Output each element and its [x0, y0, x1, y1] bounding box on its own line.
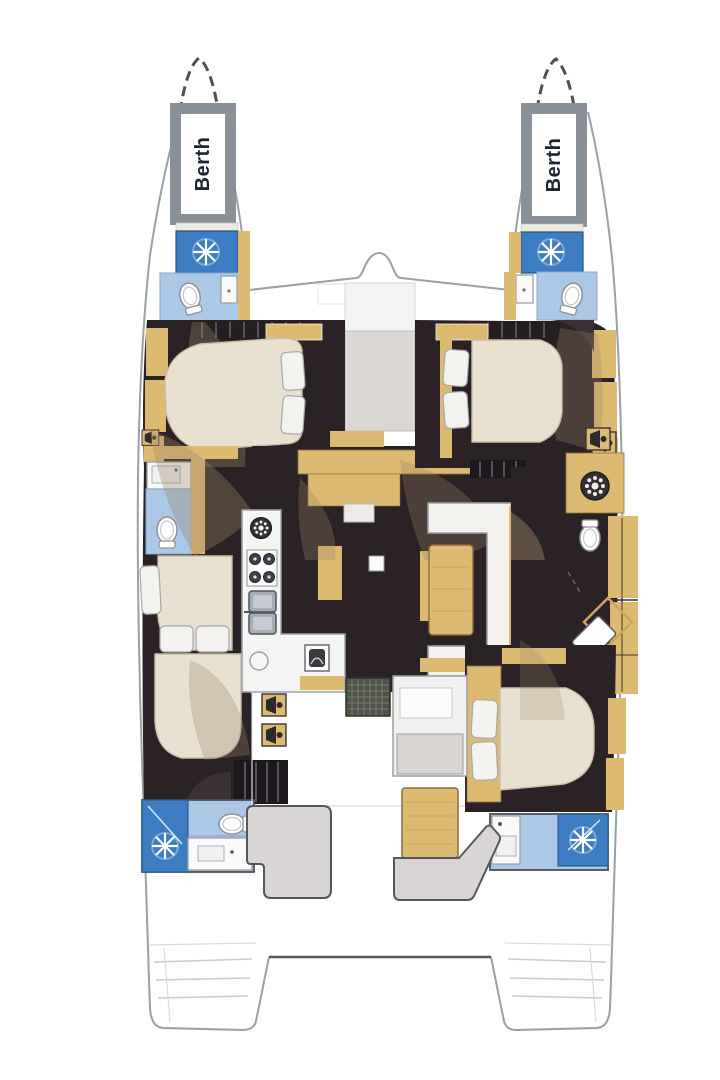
toilet-icon [157, 517, 177, 548]
pillow [281, 351, 306, 390]
vent-icon [251, 518, 272, 539]
cockpit-sofa [247, 806, 331, 898]
cockpit [247, 788, 500, 957]
round-sink-icon [250, 652, 268, 670]
pillow [471, 741, 498, 780]
pillow [471, 699, 498, 738]
catamaran-floor-plan: Berth [0, 0, 720, 1080]
speaker-icon [586, 428, 610, 450]
pillow [443, 391, 469, 429]
floor-hatch [369, 556, 384, 571]
shower-spray-icon [152, 833, 178, 859]
port-bow-head [160, 223, 250, 321]
salon-front-window [345, 331, 415, 431]
stove-icon [247, 550, 277, 586]
toilet-icon [580, 520, 600, 551]
starboard-berth-label: Berth [543, 138, 565, 193]
speaker-icon [262, 694, 286, 716]
shower-spray-icon [538, 239, 564, 265]
speaker-icon [262, 724, 286, 746]
starboard-bow-berth: Berth [521, 103, 587, 227]
chart-desk [393, 676, 467, 776]
shower-spray-icon [193, 239, 219, 265]
dining-table [429, 545, 473, 635]
window-blinds [478, 321, 560, 339]
starboard-bow-head [504, 224, 597, 320]
toilet-icon [219, 814, 250, 834]
cockpit-table [402, 788, 458, 858]
pillow [160, 626, 193, 652]
washing-machine-icon [581, 472, 609, 500]
salon-front-window-upper [345, 283, 415, 331]
pillow [443, 349, 469, 387]
hull-cabinets [606, 698, 626, 810]
starboard-transom-steps [508, 948, 606, 1022]
double-sink-icon [244, 591, 276, 634]
port-bow-berth: Berth [170, 103, 236, 225]
deck-grate-icon [346, 678, 390, 716]
floor-plan-svg: Berth [0, 0, 720, 1080]
companionway-steps-icon [234, 760, 288, 804]
shower-spray-icon [570, 827, 596, 853]
galley-appliance [305, 645, 329, 671]
starboard-aft-head [490, 814, 608, 870]
port-transom-steps [154, 948, 252, 1022]
island-bed [472, 340, 562, 442]
port-aft-head [142, 800, 254, 872]
port-berth-label: Berth [192, 137, 214, 192]
pillow [140, 566, 161, 615]
pillow [196, 626, 229, 652]
pillow [281, 395, 306, 434]
